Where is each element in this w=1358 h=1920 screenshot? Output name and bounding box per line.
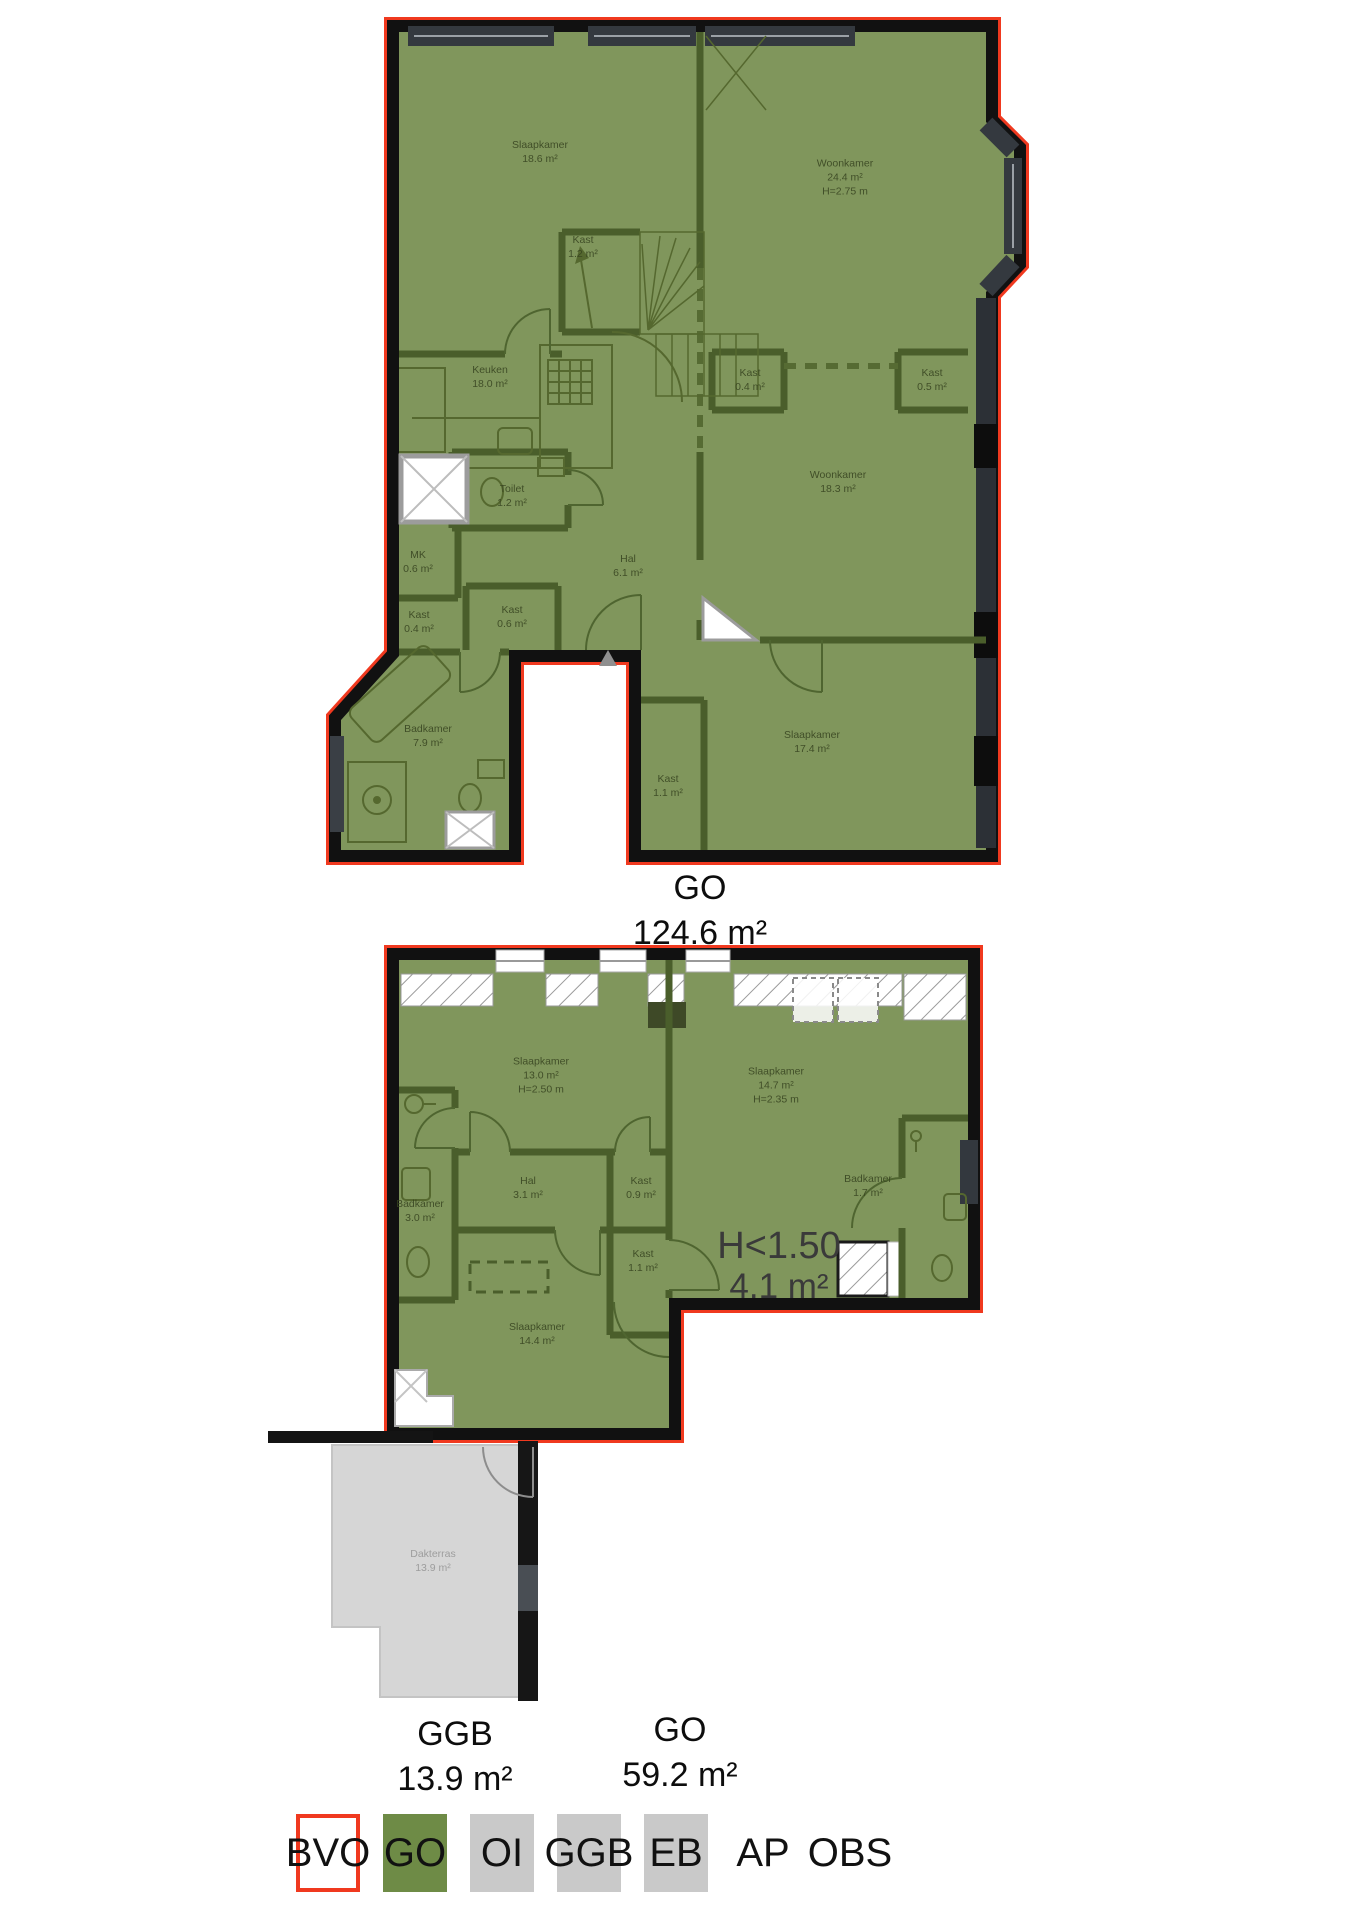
room-label-kast-05: Kast 0.5 m²: [917, 366, 947, 394]
low-height-annotation: H<1.50 4.1 m²: [717, 1226, 841, 1306]
room-label-keuken: Keuken 18.0 m²: [472, 363, 508, 391]
ggb-area-label: GGB 13.9 m²: [397, 1712, 512, 1802]
room-label-kast-04-mid: Kast 0.4 m²: [735, 366, 765, 394]
legend-item-obs: OBS: [818, 1814, 882, 1892]
room-label-badkamer-upper: Badkamer 7.9 m²: [404, 722, 452, 750]
room-label-toilet: Toilet 1.2 m²: [497, 482, 527, 510]
room-label-kast-06: Kast 0.6 m²: [497, 603, 527, 631]
room-label-kast-11-lower: Kast 1.1 m²: [628, 1247, 658, 1275]
room-label-slaapkamer-2: Slaapkamer 17.4 m²: [784, 728, 840, 756]
room-label-badkamer-30: Badkamer 3.0 m²: [396, 1197, 444, 1225]
legend-item-ap: AP: [731, 1814, 795, 1892]
room-label-mk: MK 0.6 m²: [403, 548, 433, 576]
room-label-woonkamer-2: Woonkamer 18.3 m²: [810, 468, 866, 496]
room-label-slaapkamer-4: Slaapkamer 14.7 m² H=2.35 m: [748, 1065, 804, 1108]
room-label-woonkamer-1: Woonkamer 24.4 m² H=2.75 m: [817, 157, 873, 200]
legend: BVO GO OI GGB EB AP OBS: [296, 1814, 882, 1892]
dakterras-shape: [268, 1431, 538, 1701]
legend-item-bvo: BVO: [296, 1814, 360, 1892]
legend-item-oi: OI: [470, 1814, 534, 1892]
legend-item-ggb: GGB: [557, 1814, 621, 1892]
lower-go-area-label: GO 59.2 m²: [622, 1708, 737, 1798]
room-label-dakterras: Dakterras 13.9 m²: [410, 1547, 456, 1575]
room-label-slaapkamer-5: Slaapkamer 14.4 m²: [509, 1320, 565, 1348]
room-label-kast-stairs: Kast 1.2 m²: [568, 233, 598, 261]
room-label-badkamer-17: Badkamer 1.7 m²: [844, 1172, 892, 1200]
room-label-kast-09: Kast 0.9 m²: [626, 1174, 656, 1202]
upper-area-label: GO 124.6 m²: [633, 866, 767, 956]
room-label-kast-04-left: Kast 0.4 m²: [404, 608, 434, 636]
floorplan-page: Slaapkamer 18.6 m² Kast 1.2 m² Woonkamer…: [0, 0, 1358, 1920]
floorplan-drawing: [0, 0, 1358, 1920]
room-label-hal-lower: Hal 3.1 m²: [513, 1174, 543, 1202]
room-label-hal-upper: Hal 6.1 m²: [613, 552, 643, 580]
legend-item-go: GO: [383, 1814, 447, 1892]
room-label-kast-11-upper: Kast 1.1 m²: [653, 772, 683, 800]
room-label-slaapkamer-3: Slaapkamer 13.0 m² H=2.50 m: [513, 1055, 569, 1098]
room-label-slaapkamer-1: Slaapkamer 18.6 m²: [512, 138, 568, 166]
legend-item-eb: EB: [644, 1814, 708, 1892]
